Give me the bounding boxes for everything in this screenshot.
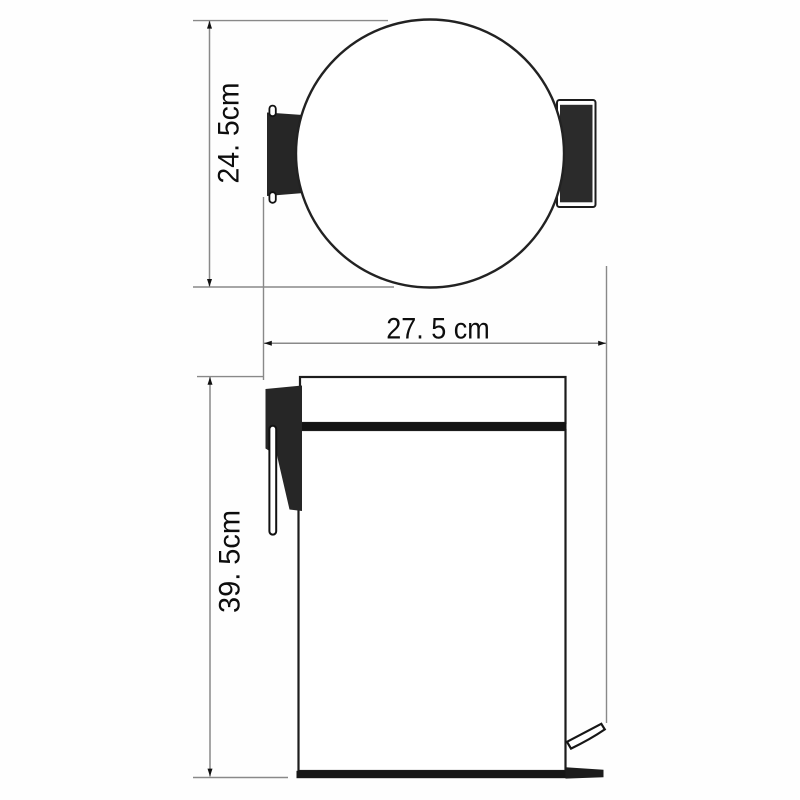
svg-text:27. 5 cm: 27. 5 cm <box>386 313 490 346</box>
svg-text:24. 5cm: 24. 5cm <box>213 83 246 184</box>
svg-text:39. 5cm: 39. 5cm <box>214 510 247 613</box>
